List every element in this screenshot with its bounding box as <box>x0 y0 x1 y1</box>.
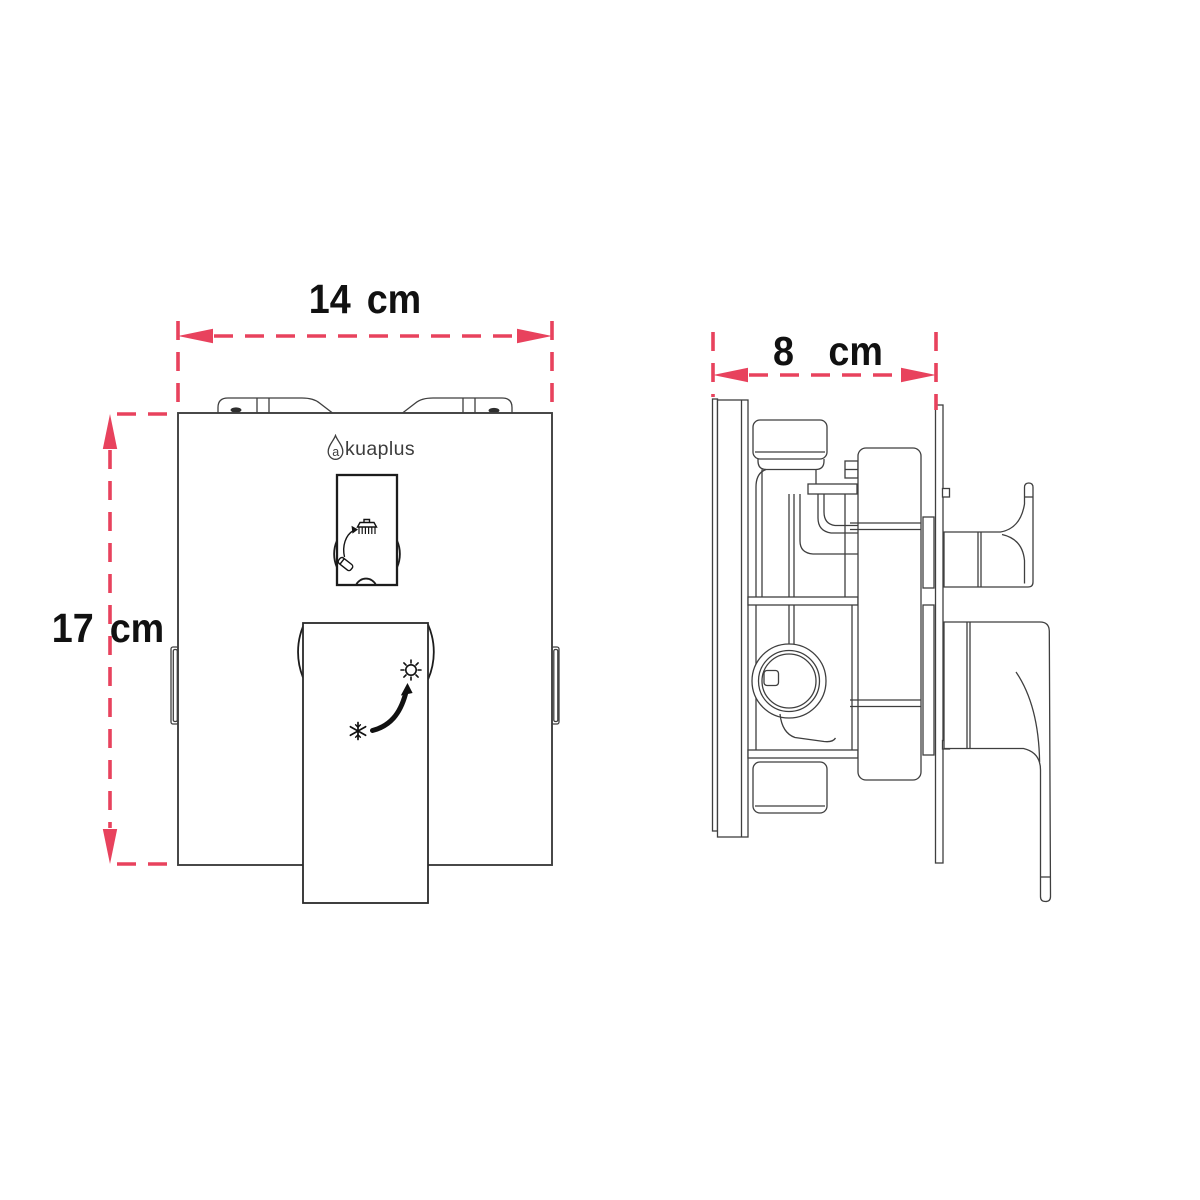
side-view <box>713 399 1051 902</box>
wall-bracket <box>713 399 749 837</box>
lever-handle-side <box>944 622 1051 902</box>
shower-port-top <box>753 420 827 459</box>
arrowhead-right <box>517 329 552 343</box>
height-dimension-label: 17 cm <box>7 605 209 652</box>
mounting-clips <box>218 398 512 413</box>
water-drop-icon: a <box>327 434 344 461</box>
arrowhead-up <box>103 414 117 449</box>
arrowhead-down <box>103 829 117 864</box>
width-dimension <box>178 321 552 409</box>
brand-wordmark: kuaplus <box>345 440 415 462</box>
tub-port-front-face <box>752 644 826 718</box>
diagram-canvas: 14 cm 17 cm 8 cm a kuaplus <box>0 0 1200 1200</box>
width-dimension-label: 14 cm <box>264 276 466 323</box>
brand-initial: a <box>332 445 339 459</box>
clip-screw-left <box>231 407 242 412</box>
technical-drawing <box>0 0 1200 1200</box>
depth-dimension-label: 8 cm <box>727 328 929 375</box>
mounting-sleeve <box>923 517 934 755</box>
cartridge-housing <box>850 448 921 780</box>
front-view <box>171 398 559 903</box>
valve-body <box>748 420 858 813</box>
arrowhead-left <box>178 329 213 343</box>
brand-logo: a kuaplus <box>327 434 415 461</box>
diverter-knob-side <box>944 483 1033 587</box>
